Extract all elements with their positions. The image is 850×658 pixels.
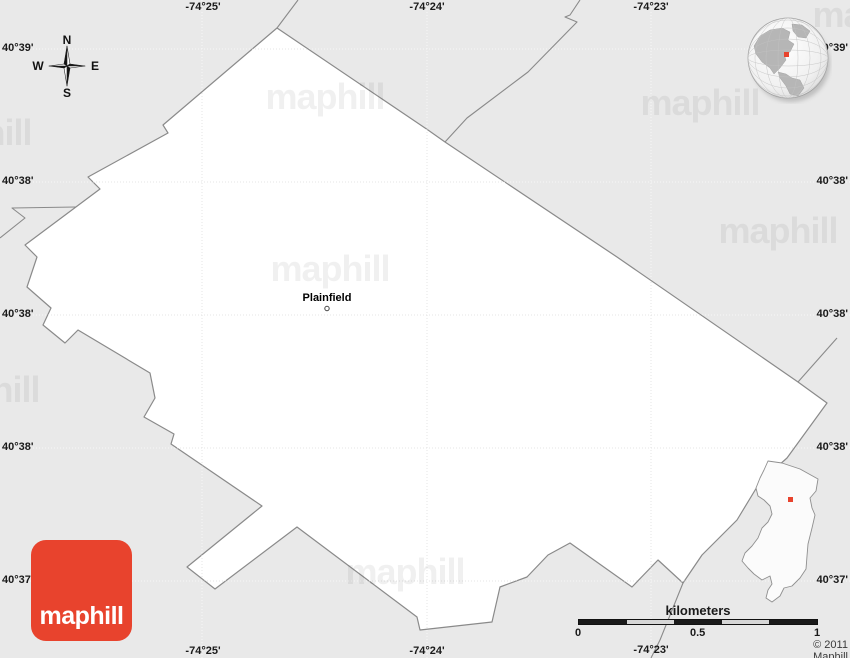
grid-label-left-3: 40°38' (2, 441, 34, 453)
scale-segment (627, 620, 675, 624)
scale-segment (722, 620, 770, 624)
scale-segment (579, 620, 627, 624)
grid-label-top-0: -74°25' (185, 1, 220, 13)
state-inset-map (728, 452, 840, 610)
grid-label-left-2: 40°38' (2, 308, 34, 320)
inset-location-marker (788, 497, 793, 502)
grid-label-bottom-0: -74°25' (185, 645, 220, 657)
copyright-text: © 2011 Maphill (813, 639, 848, 658)
grid-label-right-2: 40°38' (817, 308, 849, 320)
maphill-logo[interactable]: maphill (31, 540, 132, 641)
grid-label-bottom-1: -74°24' (409, 645, 444, 657)
compass-rose-icon (45, 44, 89, 88)
grid-label-right-1: 40°38' (817, 175, 849, 187)
grid-label-left-1: 40°38' (2, 175, 34, 187)
grid-label-left-4: 40°37' (2, 574, 34, 586)
compass-west-label: W (32, 59, 43, 73)
compass-rose: N W E S (28, 28, 106, 106)
compass-east-label: E (91, 59, 99, 73)
scale-segment (769, 620, 817, 624)
scale-tick-end: 1 (814, 627, 820, 639)
scale-bar (578, 619, 818, 625)
grid-label-right-4: 40°37' (817, 574, 849, 586)
place-label: Plainfield (303, 292, 352, 304)
grid-label-bottom-2: -74°23' (633, 644, 668, 656)
maphill-logo-label: maphill (39, 602, 123, 631)
place-marker-icon (325, 306, 329, 310)
grid-label-top-1: -74°24' (409, 1, 444, 13)
globe-location-marker (784, 52, 789, 57)
grid-label-right-3: 40°38' (817, 441, 849, 453)
scale-tick-mid: 0.5 (690, 627, 705, 639)
scale-bar-title: kilometers (665, 603, 730, 618)
grid-label-top-2: -74°23' (633, 1, 668, 13)
compass-south-label: S (63, 86, 71, 100)
map-canvas[interactable]: maphill maphill maphill maphill maphill … (0, 0, 850, 658)
globe-locator-icon (744, 16, 832, 104)
scale-tick-start: 0 (575, 627, 581, 639)
scale-segment (674, 620, 722, 624)
